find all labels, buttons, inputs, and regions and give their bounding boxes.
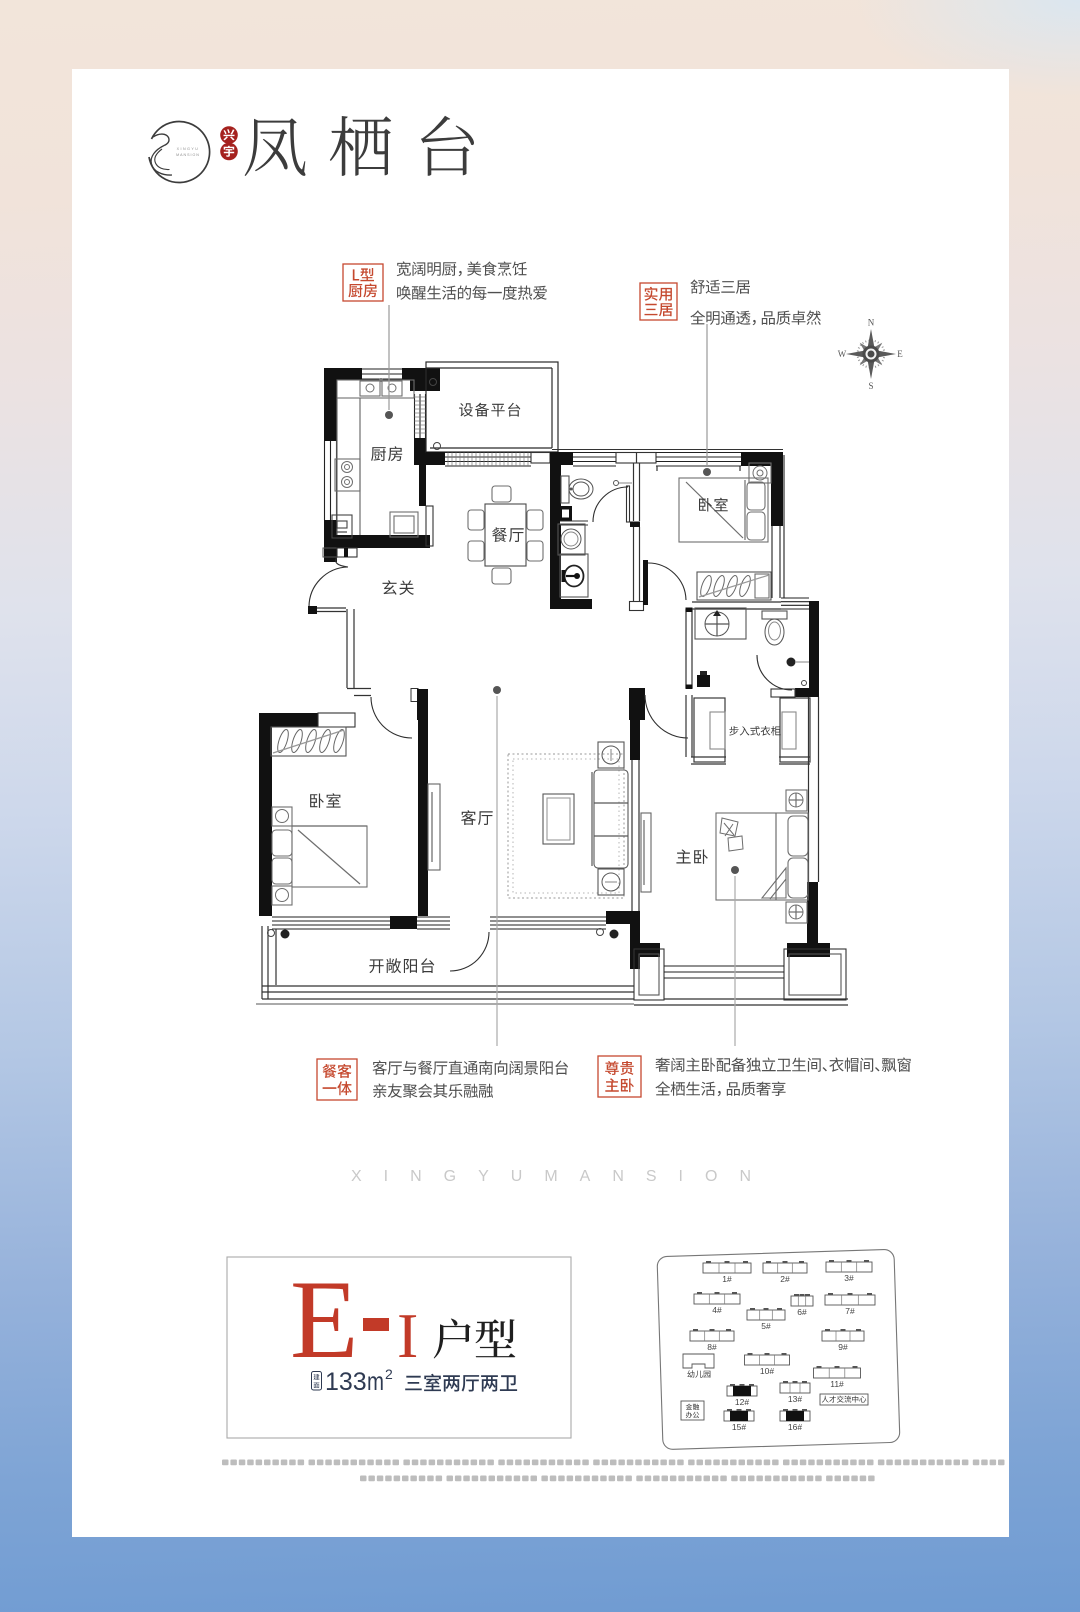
svg-text:W: W (838, 349, 847, 359)
svg-text:XINGYU: XINGYU (177, 147, 200, 151)
svg-text:12#: 12# (735, 1397, 749, 1407)
svg-text:5#: 5# (761, 1321, 771, 1331)
svg-text:16#: 16# (788, 1422, 802, 1432)
svg-text:E: E (897, 349, 903, 359)
svg-text:m: m (367, 1366, 384, 1396)
svg-text:S: S (868, 381, 873, 391)
svg-text:10#: 10# (760, 1366, 774, 1376)
svg-text:2: 2 (385, 1366, 393, 1382)
svg-text:N: N (868, 318, 875, 328)
svg-text:15#: 15# (732, 1422, 746, 1432)
svg-text:7#: 7# (845, 1306, 855, 1316)
svg-text:8#: 8# (707, 1342, 717, 1352)
svg-text:XINGYUMANSION: XINGYUMANSION (351, 1168, 773, 1185)
svg-text:6#: 6# (797, 1307, 807, 1317)
svg-text:MANSION: MANSION (176, 153, 200, 157)
svg-text:3#: 3# (844, 1273, 854, 1283)
svg-text:2#: 2# (780, 1274, 790, 1284)
svg-text:11#: 11# (830, 1379, 844, 1389)
svg-text:4#: 4# (712, 1305, 722, 1315)
svg-text:E: E (290, 1258, 358, 1382)
svg-text:133: 133 (325, 1368, 367, 1396)
svg-text:1#: 1# (722, 1274, 732, 1284)
svg-text:13#: 13# (788, 1394, 802, 1404)
svg-text:9#: 9# (838, 1342, 848, 1352)
svg-text:I: I (397, 1300, 418, 1371)
